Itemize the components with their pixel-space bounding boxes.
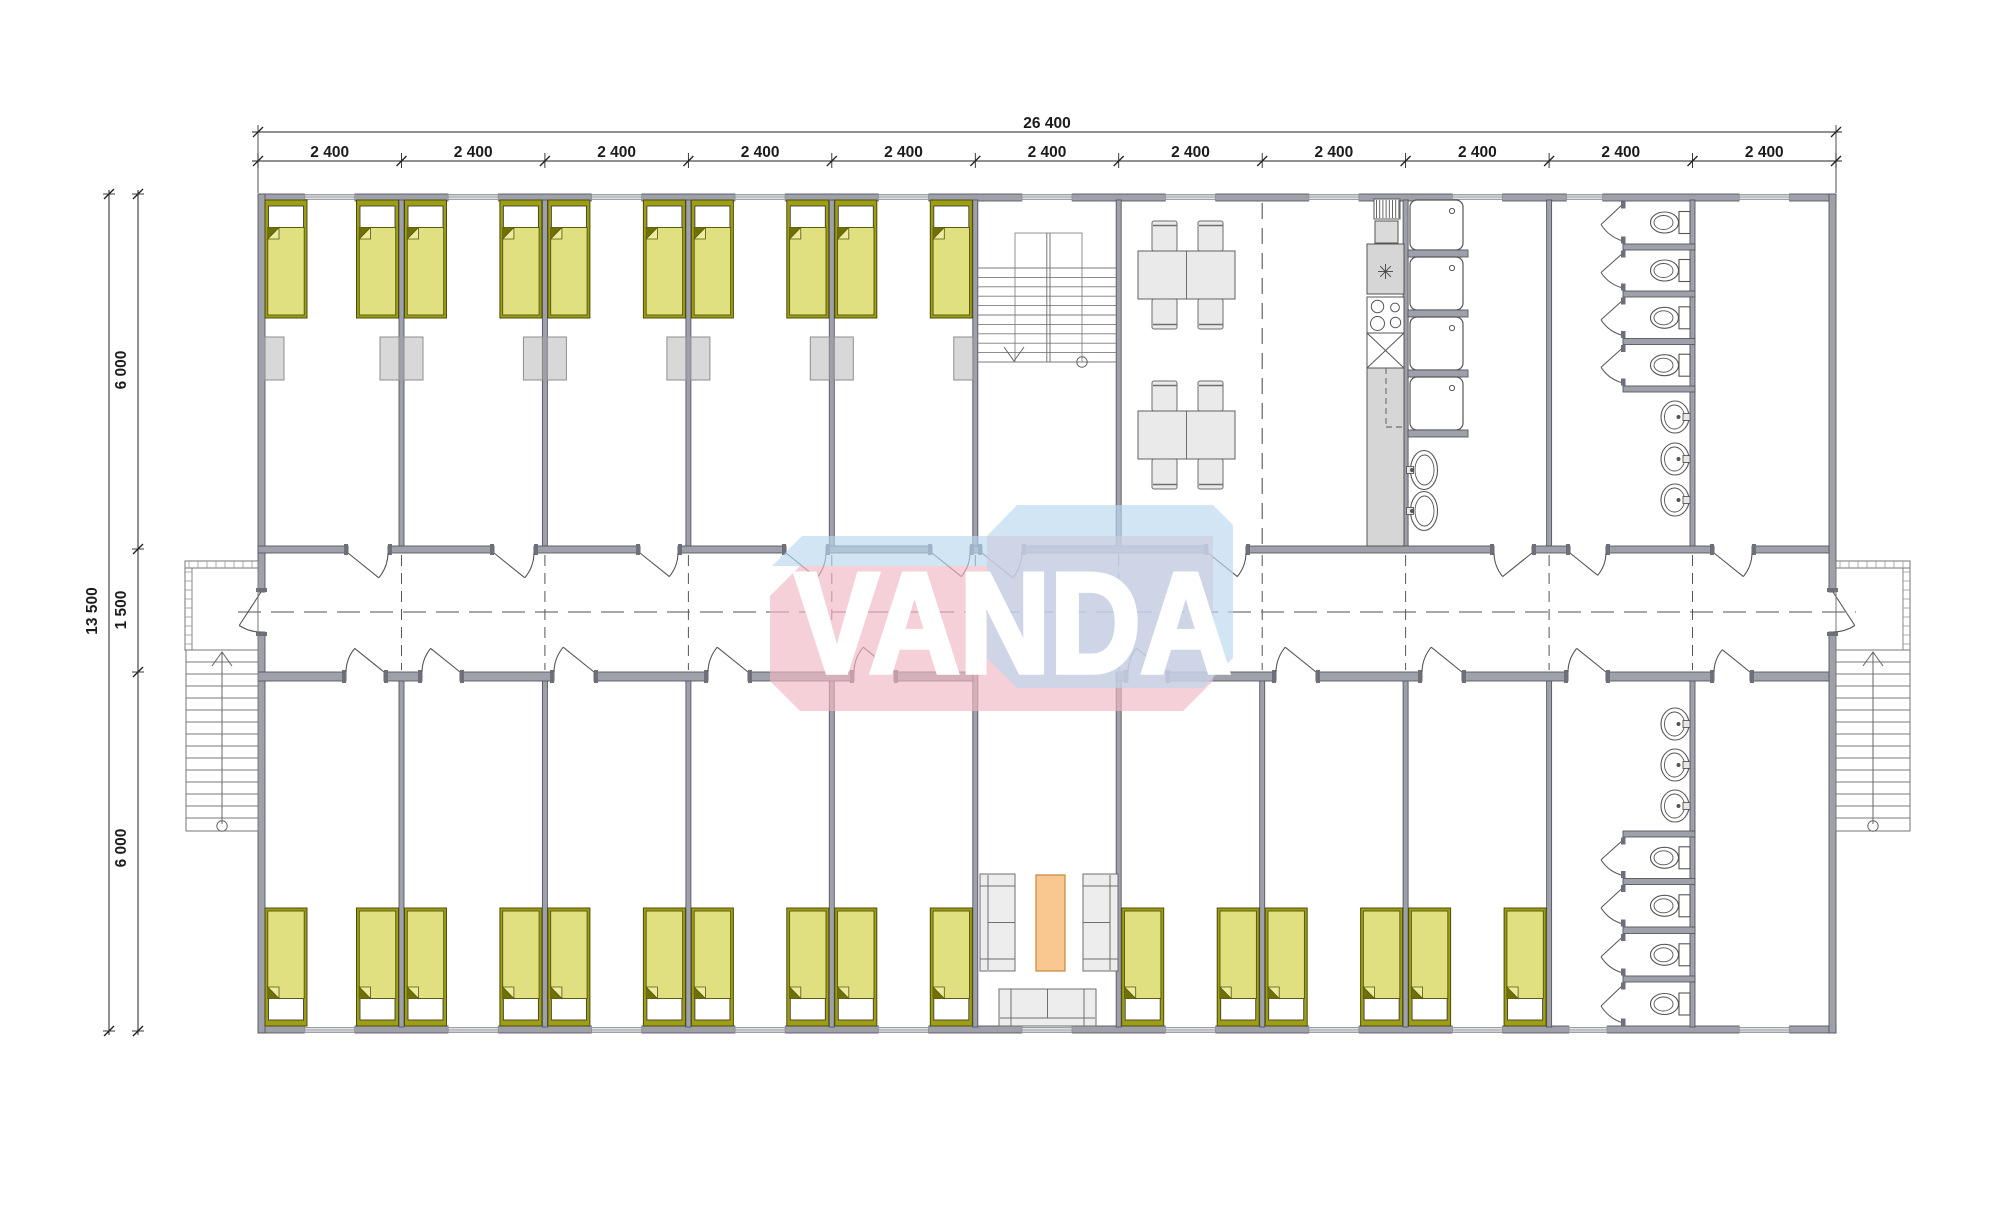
svg-text:2 400: 2 400 (1601, 144, 1640, 161)
svg-text:6 000: 6 000 (113, 829, 130, 868)
svg-text:2 400: 2 400 (884, 144, 923, 161)
svg-text:2 400: 2 400 (1315, 144, 1354, 161)
svg-text:2 400: 2 400 (310, 144, 349, 161)
svg-text:VANDA: VANDA (795, 544, 1231, 703)
svg-text:13 500: 13 500 (84, 587, 101, 634)
svg-text:2 400: 2 400 (1171, 144, 1210, 161)
svg-text:2 400: 2 400 (1745, 144, 1784, 161)
svg-text:6 000: 6 000 (113, 351, 130, 390)
svg-text:2 400: 2 400 (597, 144, 636, 161)
svg-text:2 400: 2 400 (454, 144, 493, 161)
svg-text:2 400: 2 400 (1028, 144, 1067, 161)
svg-text:1 500: 1 500 (113, 591, 130, 630)
svg-text:26 400: 26 400 (1023, 115, 1070, 132)
svg-text:2 400: 2 400 (1458, 144, 1497, 161)
svg-text:2 400: 2 400 (741, 144, 780, 161)
